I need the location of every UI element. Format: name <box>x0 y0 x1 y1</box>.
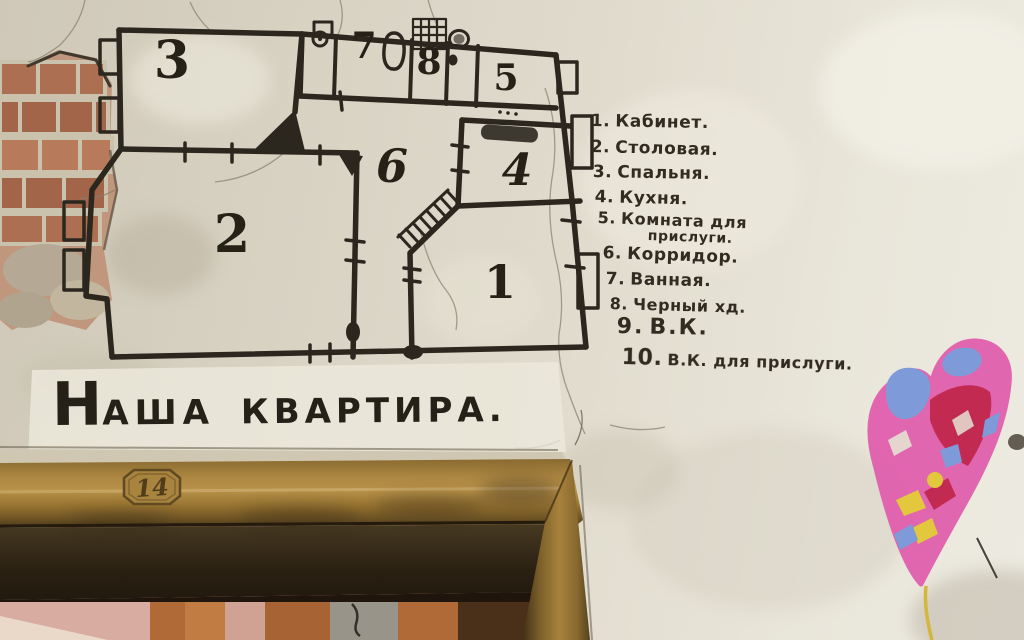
legend-line: 4.Кухня. <box>595 187 689 209</box>
room-number-5: 5 <box>493 57 518 99</box>
kitchen-stove-bar <box>481 124 539 143</box>
doorway: 14 <box>0 447 592 640</box>
legend-line: 3.Спальня. <box>593 162 711 184</box>
room-number-3: 3 <box>154 30 190 91</box>
room-number-4: 4 <box>502 145 533 196</box>
brick-patch <box>0 50 118 330</box>
door-number-plate: 14 <box>124 470 180 504</box>
caption-initial: Н <box>52 378 103 432</box>
room-number-7: 7 <box>351 25 376 67</box>
wall-drawing-layer: 3 2 6 4 1 5 7 8 <box>0 0 1024 640</box>
legend-line: 7.Ванная. <box>606 269 712 291</box>
caption-word1: АША <box>102 393 215 434</box>
room-number-1: 1 <box>484 255 516 309</box>
wall-photo: 3 2 6 4 1 5 7 8 <box>0 0 1024 640</box>
room-number-6: 6 <box>376 139 408 193</box>
wall-blob <box>346 322 360 342</box>
legend-line: 2.Столовая. <box>591 137 719 160</box>
legend-line: 1.Кабинет. <box>591 111 709 133</box>
bathtub-icon <box>384 33 404 69</box>
legend-line: 9.В.К. <box>617 314 710 341</box>
caption-word2: КВАРТИРА. <box>241 390 507 432</box>
room-number-8: 8 <box>416 41 441 83</box>
door-number: 14 <box>134 472 169 503</box>
wall-caption: НАШАКВАРТИРА. <box>52 374 507 434</box>
room-number-2: 2 <box>214 204 250 265</box>
wall-blob <box>403 345 423 359</box>
corner-stove-triangle <box>252 110 305 152</box>
